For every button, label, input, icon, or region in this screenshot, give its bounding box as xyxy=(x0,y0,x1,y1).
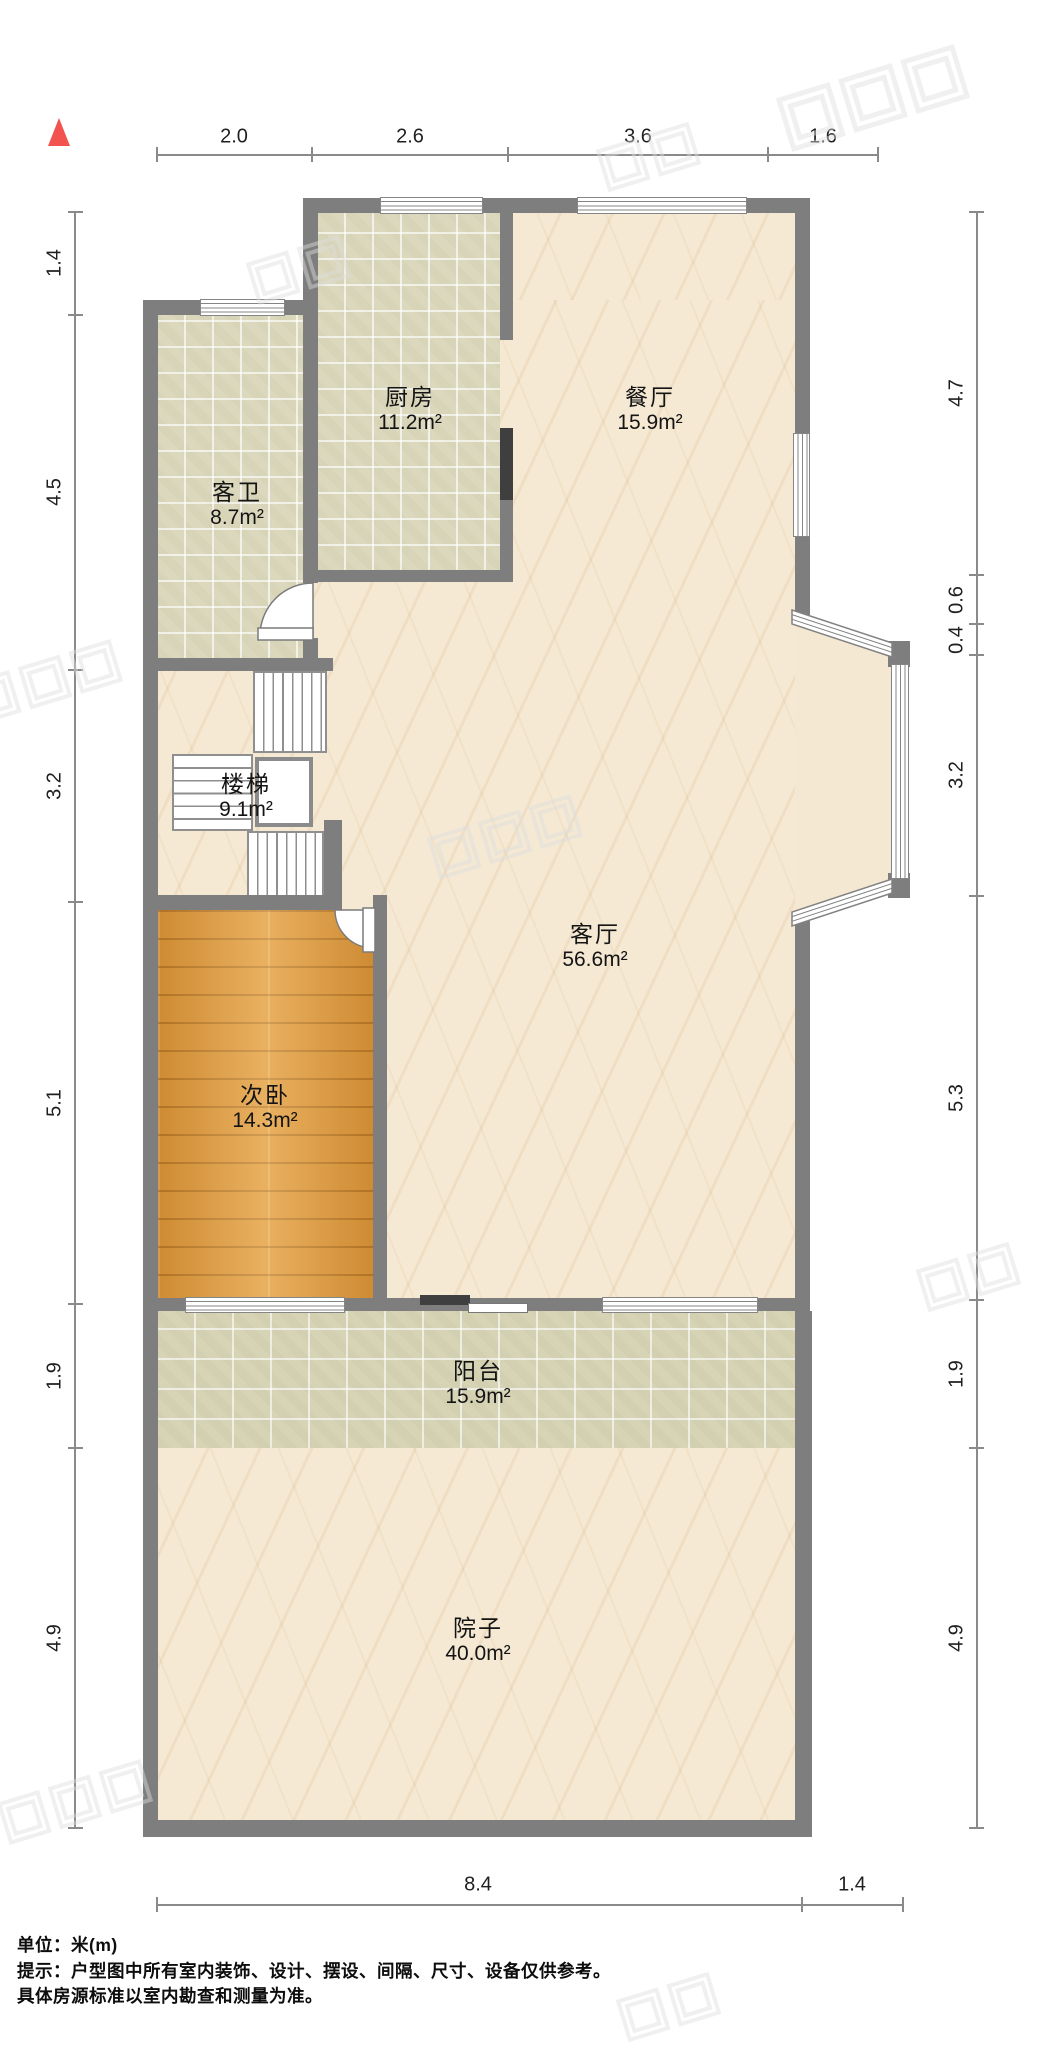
dim-label-right: 4.7 xyxy=(946,379,969,407)
dim-label-right: 0.4 xyxy=(946,626,969,654)
room-area: 8.7m² xyxy=(210,505,264,531)
dim-line-top xyxy=(157,154,878,156)
dim-tick xyxy=(68,314,83,316)
room-name: 厨房 xyxy=(378,384,442,410)
dim-line-left xyxy=(74,212,76,1828)
dim-line-bottom xyxy=(157,1904,903,1906)
footer-unit-line: 单位：米(m) xyxy=(17,1933,611,1959)
overlay-svg xyxy=(0,0,1055,2048)
dim-tick xyxy=(902,1897,904,1912)
room-label-bedroom: 次卧 14.3m² xyxy=(232,1082,297,1134)
room-area: 15.9m² xyxy=(445,1384,510,1410)
room-label-kitchen: 厨房 11.2m² xyxy=(378,384,442,436)
dim-tick xyxy=(68,211,83,213)
dim-label-left: 1.4 xyxy=(44,249,67,277)
room-name: 客厅 xyxy=(562,921,627,947)
dim-label-top: 1.6 xyxy=(809,126,837,149)
room-label-living: 客厅 56.6m² xyxy=(562,921,627,973)
dim-tick xyxy=(68,901,83,903)
dim-tick xyxy=(68,1303,83,1305)
floorplan-canvas: 厨房 11.2m² 餐厅 15.9m² 客卫 8.7m² 楼梯 9.1m² 客厅… xyxy=(0,0,1055,2048)
window-bay-top-mullion xyxy=(792,619,892,652)
dim-tick xyxy=(156,147,158,162)
room-label-bathroom: 客卫 8.7m² xyxy=(210,479,264,531)
window-bay-bottom-angled xyxy=(792,879,892,926)
room-name: 阳台 xyxy=(445,1358,510,1384)
dim-line-right xyxy=(976,212,978,1828)
footer-tip-line1: 提示：户型图中所有室内装饰、设计、摆设、间隔、尺寸、设备仅供参考。 xyxy=(17,1959,611,1985)
dim-label-right: 1.9 xyxy=(946,1360,969,1388)
room-area: 56.6m² xyxy=(562,947,627,973)
room-name: 餐厅 xyxy=(617,384,682,410)
room-area: 14.3m² xyxy=(232,1108,297,1134)
window-bay-bottom-mullion xyxy=(792,888,892,921)
dim-tick xyxy=(767,147,769,162)
dim-tick xyxy=(969,574,984,576)
dim-tick xyxy=(507,147,509,162)
dim-tick xyxy=(969,1447,984,1449)
dim-label-left: 5.1 xyxy=(44,1089,67,1117)
room-area: 9.1m² xyxy=(219,797,273,823)
room-area: 40.0m² xyxy=(445,1641,510,1667)
dim-tick xyxy=(68,1447,83,1449)
room-name: 楼梯 xyxy=(219,771,273,797)
footer-tip-line2: 具体房源标准以室内勘查和测量为准。 xyxy=(17,1984,611,2010)
dim-label-left: 4.9 xyxy=(44,1624,67,1652)
dim-label-right: 4.9 xyxy=(946,1624,969,1652)
dim-tick xyxy=(969,1299,984,1301)
dim-label-right: 0.6 xyxy=(946,586,969,614)
room-label-dining: 餐厅 15.9m² xyxy=(617,384,682,436)
dim-tick xyxy=(801,1897,803,1912)
window-bay-top-mullion xyxy=(792,615,892,648)
dim-label-left: 4.5 xyxy=(44,478,67,506)
room-area: 15.9m² xyxy=(617,410,682,436)
dim-tick xyxy=(969,1827,984,1829)
dim-tick xyxy=(877,147,879,162)
room-name: 次卧 xyxy=(232,1082,297,1108)
dim-tick xyxy=(969,211,984,213)
dim-label-bottom: 1.4 xyxy=(838,1874,866,1897)
window-bay-top-angled xyxy=(792,610,892,657)
room-label-stairs: 楼梯 9.1m² xyxy=(219,771,273,823)
dim-tick xyxy=(311,147,313,162)
footer-notes: 单位：米(m) 提示：户型图中所有室内装饰、设计、摆设、间隔、尺寸、设备仅供参考… xyxy=(17,1933,611,2010)
dim-label-top: 3.6 xyxy=(624,126,652,149)
room-label-balcony: 阳台 15.9m² xyxy=(445,1358,510,1410)
dim-label-left: 3.2 xyxy=(44,772,67,800)
door-leaf-bathroom xyxy=(258,628,313,640)
dim-label-left: 1.9 xyxy=(44,1362,67,1390)
dim-tick xyxy=(68,669,83,671)
dim-tick xyxy=(969,895,984,897)
door-leaf-bedroom xyxy=(363,908,375,952)
window-bay-bottom-mullion xyxy=(792,884,892,917)
dim-label-right: 3.2 xyxy=(946,761,969,789)
room-name: 客卫 xyxy=(210,479,264,505)
room-area: 11.2m² xyxy=(378,410,442,436)
room-label-yard: 院子 40.0m² xyxy=(445,1615,510,1667)
dim-tick xyxy=(969,623,984,625)
room-name: 院子 xyxy=(445,1615,510,1641)
dim-label-right: 5.3 xyxy=(946,1084,969,1112)
dim-label-top: 2.0 xyxy=(220,126,248,149)
dim-label-bottom: 8.4 xyxy=(464,1874,492,1897)
dim-tick xyxy=(68,1827,83,1829)
dim-tick xyxy=(156,1897,158,1912)
dim-label-top: 2.6 xyxy=(396,126,424,149)
dim-tick xyxy=(969,654,984,656)
